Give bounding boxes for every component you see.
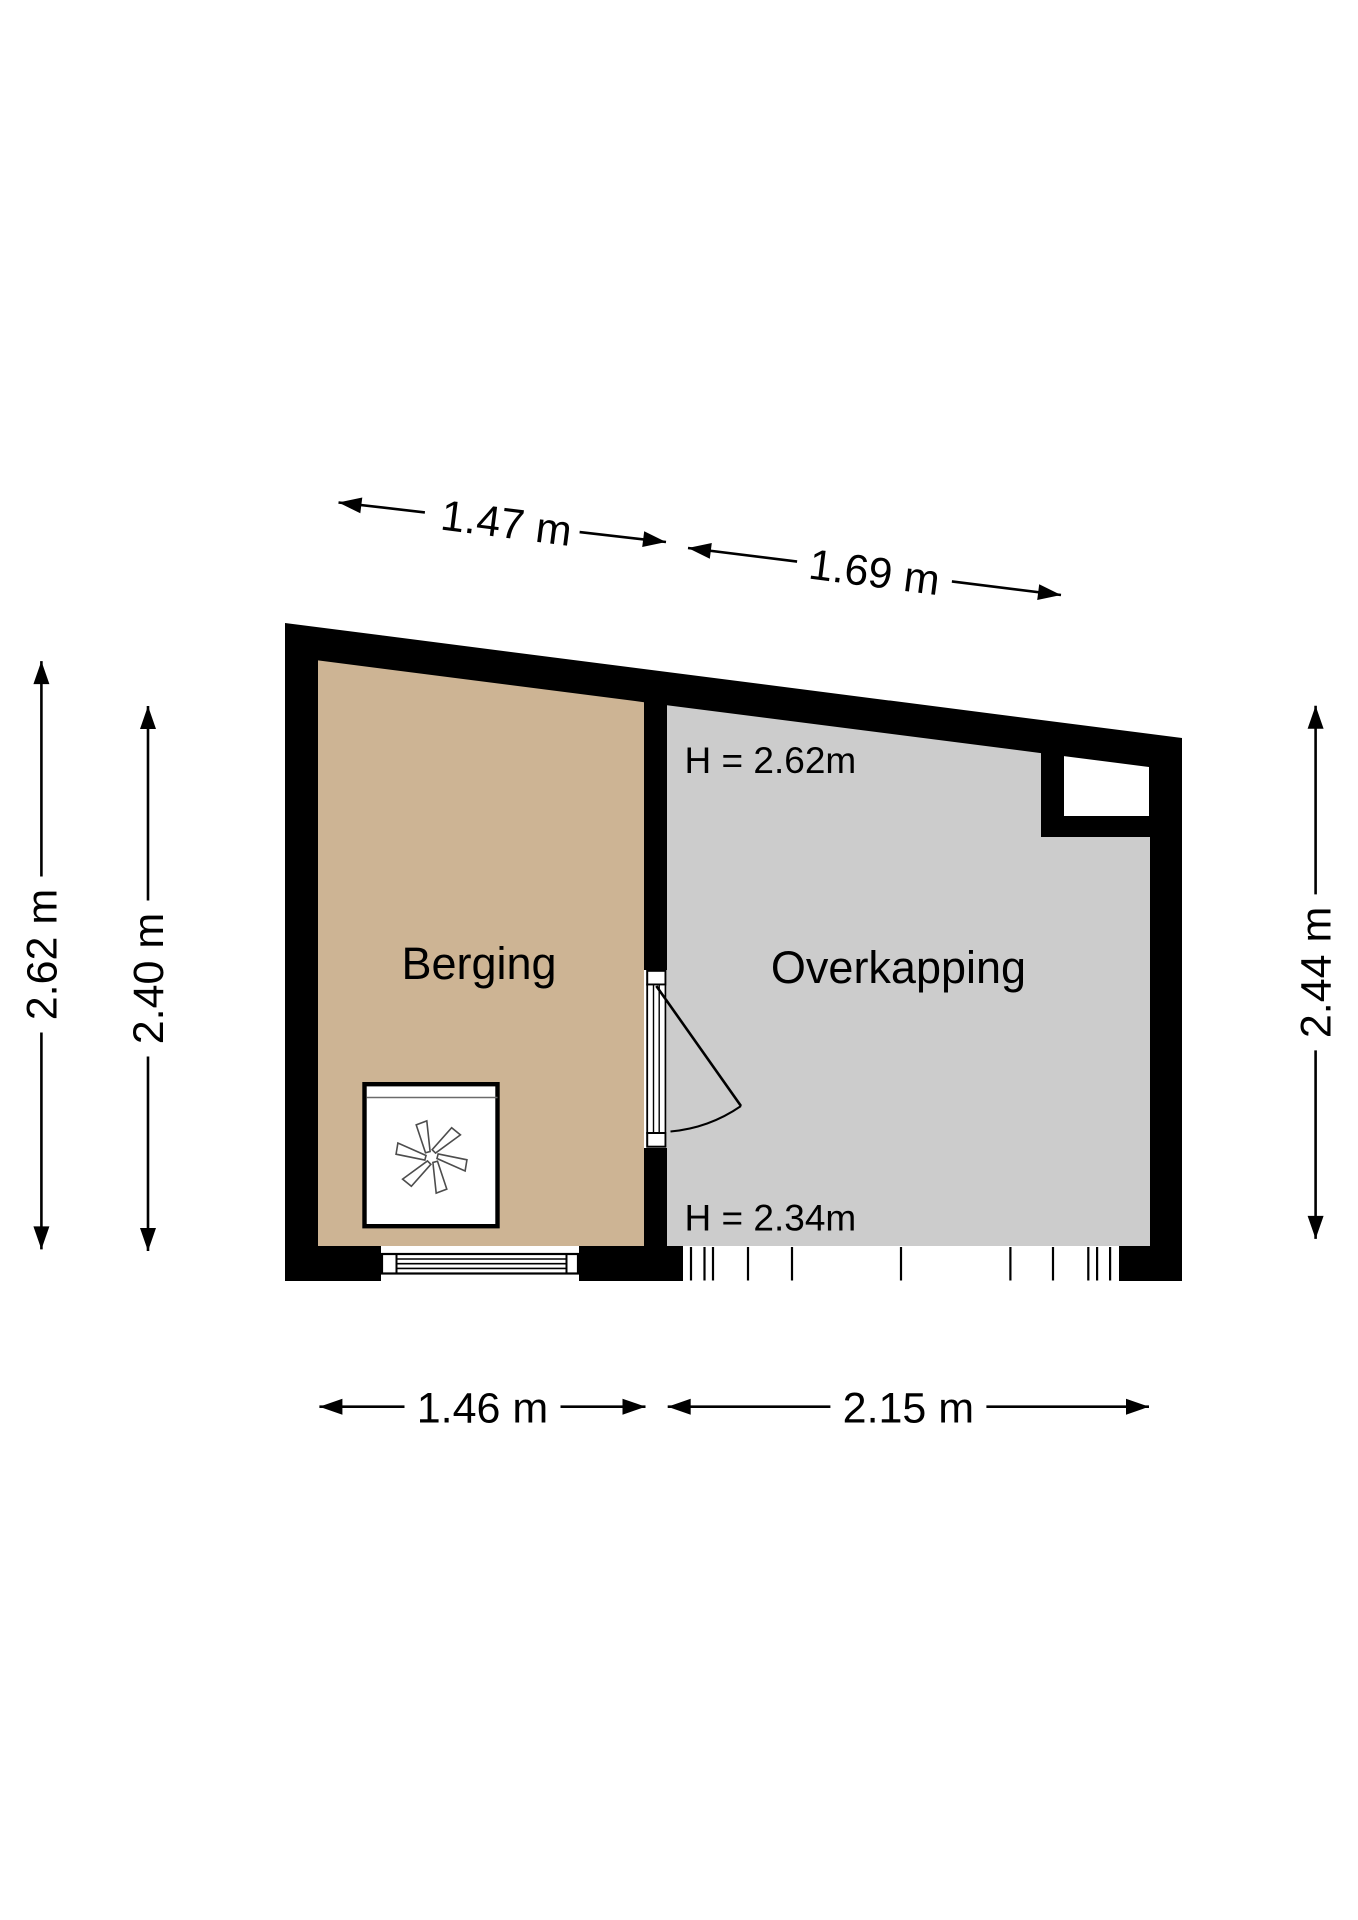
- svg-text:Overkapping: Overkapping: [771, 942, 1026, 993]
- svg-text:2.40 m: 2.40 m: [125, 913, 173, 1044]
- svg-text:2.15 m: 2.15 m: [843, 1385, 974, 1433]
- svg-text:1.46 m: 1.46 m: [417, 1385, 548, 1433]
- svg-text:Berging: Berging: [401, 938, 556, 989]
- svg-text:2.62 m: 2.62 m: [18, 889, 66, 1020]
- svg-text:H = 2.62m: H = 2.62m: [685, 740, 857, 781]
- svg-text:2.44 m: 2.44 m: [1293, 907, 1341, 1038]
- svg-text:H = 2.34m: H = 2.34m: [685, 1197, 857, 1238]
